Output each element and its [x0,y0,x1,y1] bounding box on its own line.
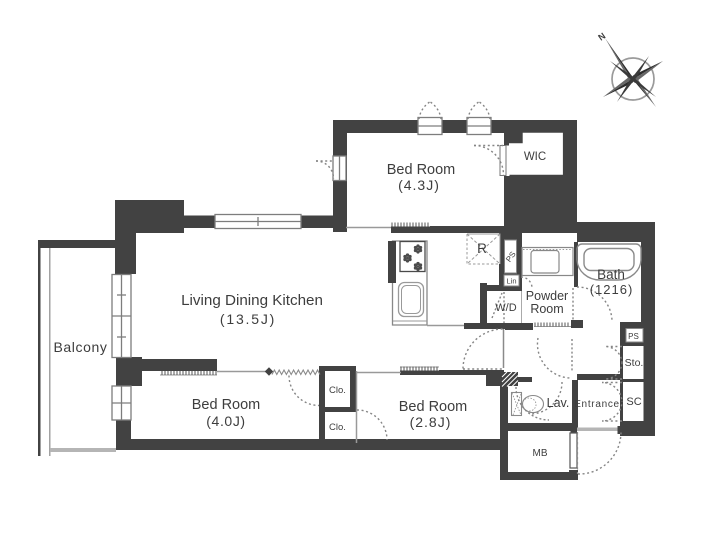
svg-text:W/D: W/D [495,302,516,314]
svg-text:(2.8J): (2.8J) [410,414,452,430]
svg-text:Balcony: Balcony [53,339,107,355]
svg-text:MB: MB [533,448,548,459]
svg-text:Bed Room: Bed Room [192,397,261,413]
svg-text:R: R [477,241,487,256]
svg-text:Sto.: Sto. [625,357,644,369]
svg-text:Room: Room [530,302,563,316]
svg-text:PS: PS [628,332,639,341]
svg-text:Powder: Powder [526,289,568,303]
svg-text:WIC: WIC [524,151,546,163]
svg-text:Bed Room: Bed Room [399,399,468,415]
svg-text:Living Dining Kitchen: Living Dining Kitchen [181,292,323,309]
svg-text:Clo.: Clo. [329,422,346,433]
svg-text:Entrance: Entrance [574,399,620,410]
svg-text:(1216): (1216) [590,282,634,297]
svg-text:(4.3J): (4.3J) [398,177,440,193]
svg-text:(4.0J): (4.0J) [206,413,245,429]
svg-text:Bath: Bath [597,267,625,282]
svg-text:SC: SC [626,396,641,408]
svg-text:Bed Room: Bed Room [387,162,456,178]
svg-text:Clo.: Clo. [329,385,346,396]
svg-text:Lin: Lin [506,277,516,286]
svg-text:(13.5J): (13.5J) [220,311,276,327]
svg-text:Lav.: Lav. [547,396,570,410]
